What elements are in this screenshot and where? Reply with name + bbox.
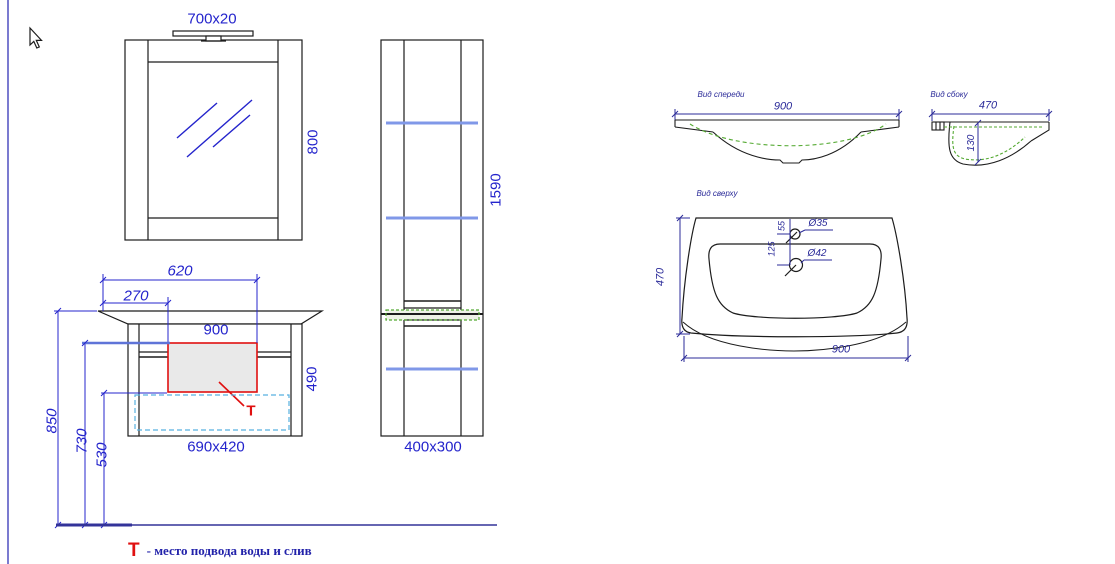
top-view-title: Вид сверху [696, 190, 737, 198]
side-view-title: Вид сбоку [930, 91, 967, 99]
legend: Т- место подвода воды и слив [128, 540, 312, 562]
top-view-depth-label: 470 [656, 268, 667, 286]
drain-hole-diameter-label: Ø42 [808, 249, 827, 259]
faucet-offset-55-label: 55 [778, 221, 787, 231]
side-view-depth-label: 130 [967, 135, 977, 152]
mirror-drawing [125, 31, 302, 240]
front-view-width-label: 900 [774, 102, 792, 113]
vanity-width-label: 900 [203, 323, 228, 338]
tall-cabinet-height-label: 1590 [489, 173, 504, 206]
mirror-lamp-size-label: 700x20 [187, 12, 236, 27]
vanity-dim-620-label: 620 [167, 264, 192, 279]
drawing-linework [0, 0, 1115, 564]
service-zone-t-marker: Т [246, 404, 255, 419]
tall-cabinet-drawing [381, 40, 483, 436]
vanity-dim-530-label: 530 [95, 442, 110, 467]
mirror-height-label: 800 [306, 129, 321, 154]
vanity-dim-850-label: 850 [45, 408, 60, 433]
legend-t-marker: Т [128, 540, 140, 561]
cad-drawing-canvas: 700x20 800 1590 400x300 620 270 900 490 … [0, 0, 1115, 564]
vanity-drawer-size-label: 690x420 [187, 440, 245, 455]
faucet-hole-diameter-label: Ø35 [809, 219, 828, 229]
vanity-height-490-label: 490 [305, 366, 320, 391]
legend-text: - место подвода воды и слив [147, 543, 312, 558]
service-zone-rect [168, 343, 257, 392]
drain-offset-125-label: 125 [768, 241, 777, 256]
side-view-width-label: 470 [979, 101, 997, 112]
vanity-dim-730-label: 730 [75, 428, 90, 453]
tall-cabinet-footprint-label: 400x300 [404, 440, 462, 455]
top-view-width-label: 900 [832, 345, 850, 356]
vanity-dim-270-label: 270 [123, 289, 148, 304]
mouse-cursor-icon [30, 28, 42, 48]
sink-side-view-drawing [929, 109, 1052, 165]
front-view-title: Вид спереди [698, 91, 745, 99]
sink-top-view-drawing [676, 215, 911, 362]
sink-front-view-drawing [672, 109, 902, 163]
